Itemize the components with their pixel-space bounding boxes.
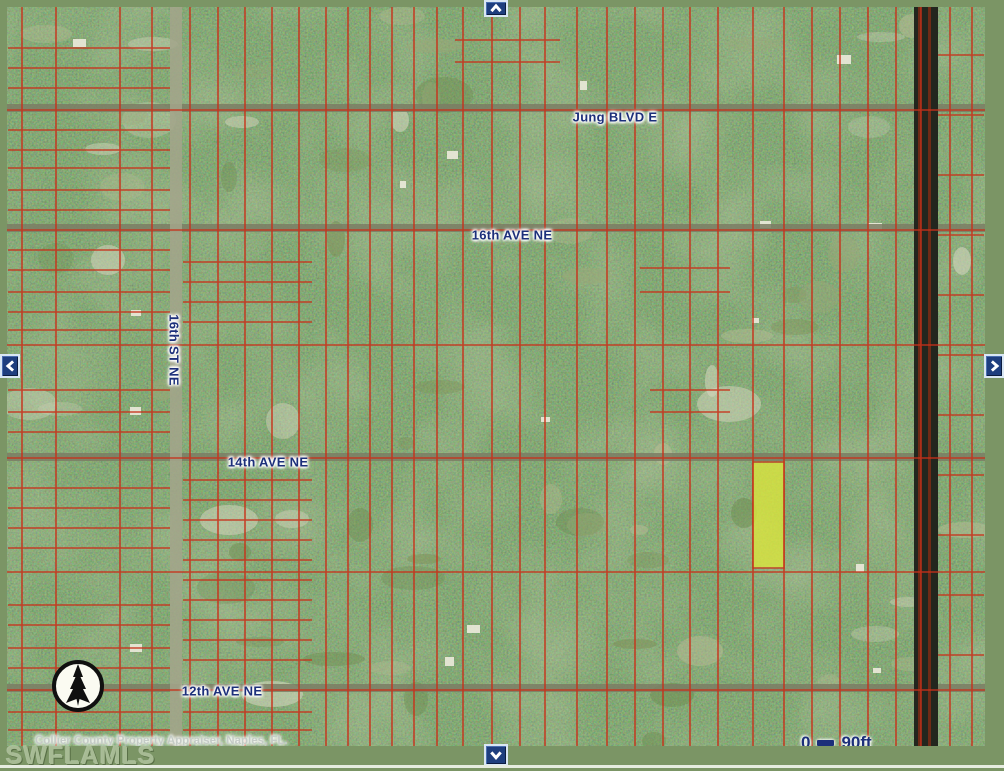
scale-bar-segment: [817, 740, 834, 746]
chevron-up-icon: [488, 2, 504, 15]
pan-left-button[interactable]: [0, 354, 20, 378]
aerial-map[interactable]: Jung BLVD E16th AVE NE16th ST NE14th AVE…: [7, 7, 985, 746]
north-arrow-icon: [50, 658, 106, 714]
selected-parcel-highlight[interactable]: [753, 462, 784, 568]
pan-up-button[interactable]: [484, 0, 508, 17]
chevron-right-icon: [988, 358, 1001, 374]
pan-right-button[interactable]: [984, 354, 1004, 378]
chevron-left-icon: [4, 358, 17, 374]
scale-start-label: 0: [801, 733, 810, 746]
chevron-down-icon: [488, 748, 504, 762]
pan-down-button[interactable]: [484, 744, 508, 766]
scale-end-label: 90ft: [841, 733, 871, 746]
aerial-imagery: [7, 7, 985, 746]
scale-bar: 0 90ft: [801, 733, 872, 746]
